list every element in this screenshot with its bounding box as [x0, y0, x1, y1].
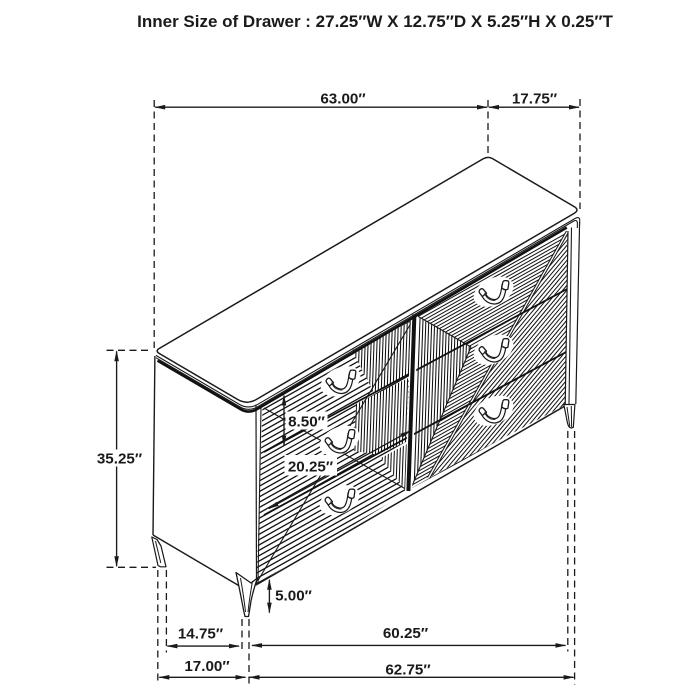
svg-text:35.25″: 35.25″	[97, 451, 142, 468]
svg-text:20.25″: 20.25″	[288, 459, 333, 476]
svg-text:63.00″: 63.00″	[320, 91, 365, 108]
svg-text:60.25″: 60.25″	[383, 625, 428, 642]
svg-text:8.50″: 8.50″	[288, 414, 325, 431]
svg-text:14.75″: 14.75″	[178, 626, 223, 643]
svg-text:17.00″: 17.00″	[184, 658, 229, 675]
svg-text:17.75″: 17.75″	[512, 91, 557, 108]
svg-text:Inner Size of Drawer : 27.25″W: Inner Size of Drawer : 27.25″W X 12.75″D…	[137, 12, 613, 31]
svg-text:62.75″: 62.75″	[385, 662, 430, 679]
svg-text:5.00″: 5.00″	[275, 588, 312, 605]
